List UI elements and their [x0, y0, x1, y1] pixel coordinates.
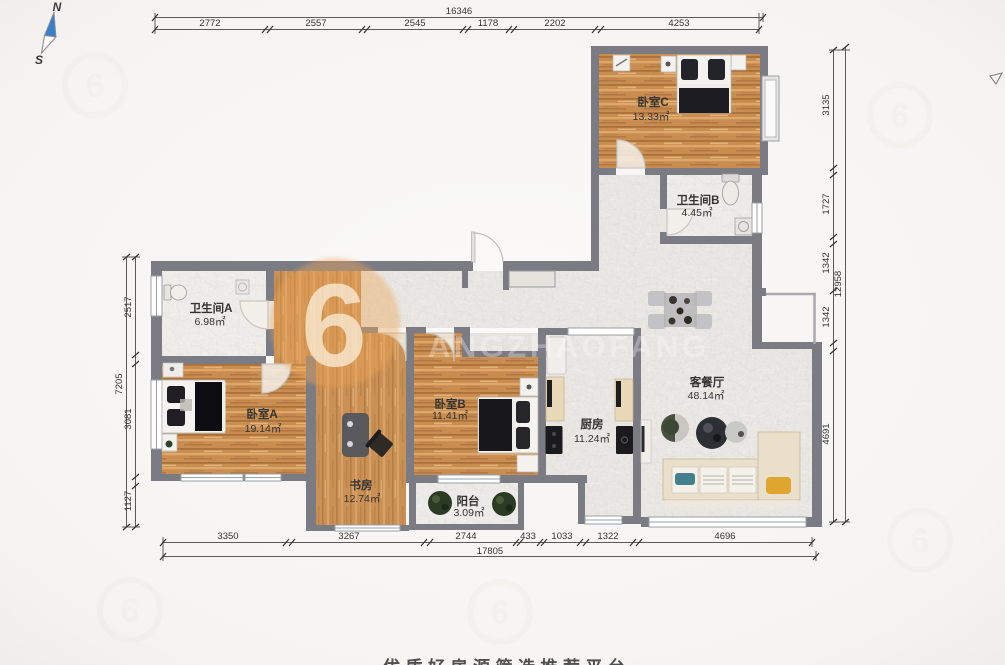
svg-text:7205: 7205	[114, 373, 125, 394]
svg-text:优质好房源筛选推荐平台: 优质好房源筛选推荐平台	[383, 657, 631, 665]
svg-text:48.14㎡: 48.14㎡	[688, 390, 725, 402]
svg-text:卫生间B: 卫生间B	[677, 193, 720, 207]
svg-text:4.45㎡: 4.45㎡	[682, 207, 713, 219]
svg-text:3.09㎡: 3.09㎡	[454, 507, 485, 519]
svg-text:13.33㎡: 13.33㎡	[633, 111, 670, 123]
svg-text:卫生间A: 卫生间A	[190, 301, 233, 315]
svg-text:3350: 3350	[217, 531, 238, 542]
svg-text:S: S	[35, 53, 43, 67]
svg-text:1342: 1342	[821, 306, 832, 327]
svg-text:2744: 2744	[455, 531, 476, 542]
svg-text:1322: 1322	[597, 531, 618, 542]
svg-text:16346: 16346	[446, 6, 472, 17]
svg-text:卧室A: 卧室A	[246, 407, 277, 421]
svg-text:1178: 1178	[478, 18, 498, 29]
svg-text:6: 6	[121, 592, 140, 630]
svg-text:卧室B: 卧室B	[434, 397, 465, 411]
svg-text:12958: 12958	[833, 271, 844, 297]
svg-text:4691: 4691	[821, 423, 832, 444]
svg-text:11.41㎡: 11.41㎡	[432, 410, 468, 422]
svg-text:6.98㎡: 6.98㎡	[195, 316, 226, 328]
svg-text:客餐厅: 客餐厅	[689, 375, 725, 389]
svg-text:1127: 1127	[123, 491, 134, 511]
svg-text:19.14㎡: 19.14㎡	[245, 423, 282, 435]
svg-text:3267: 3267	[338, 531, 359, 542]
svg-text:厨房: 厨房	[581, 417, 604, 431]
svg-text:书房: 书房	[350, 478, 373, 492]
svg-text:2202: 2202	[544, 18, 565, 29]
svg-text:3081: 3081	[123, 408, 134, 429]
svg-text:卧室C: 卧室C	[637, 95, 668, 109]
svg-text:6: 6	[891, 97, 910, 135]
svg-text:6: 6	[86, 67, 105, 105]
svg-text:4696: 4696	[714, 531, 735, 542]
svg-text:6: 6	[301, 260, 367, 392]
svg-text:1342: 1342	[821, 252, 832, 273]
svg-text:2557: 2557	[305, 18, 326, 29]
svg-text:2772: 2772	[199, 18, 220, 29]
svg-text:3135: 3135	[821, 94, 832, 115]
svg-text:1033: 1033	[551, 531, 572, 542]
svg-text:11.24㎡: 11.24㎡	[574, 433, 610, 445]
svg-text:6: 6	[491, 594, 510, 632]
svg-text:2545: 2545	[404, 18, 425, 29]
svg-text:12.74㎡: 12.74㎡	[344, 493, 381, 505]
svg-text:2517: 2517	[123, 296, 134, 317]
svg-text:433: 433	[520, 531, 536, 542]
svg-text:阳台: 阳台	[457, 494, 480, 508]
svg-text:4253: 4253	[668, 18, 689, 29]
svg-text:6: 6	[911, 522, 930, 560]
svg-text:1727: 1727	[821, 193, 832, 214]
svg-text:17805: 17805	[477, 546, 503, 557]
svg-text:ANGZHAOFANG: ANGZHAOFANG	[428, 329, 709, 364]
